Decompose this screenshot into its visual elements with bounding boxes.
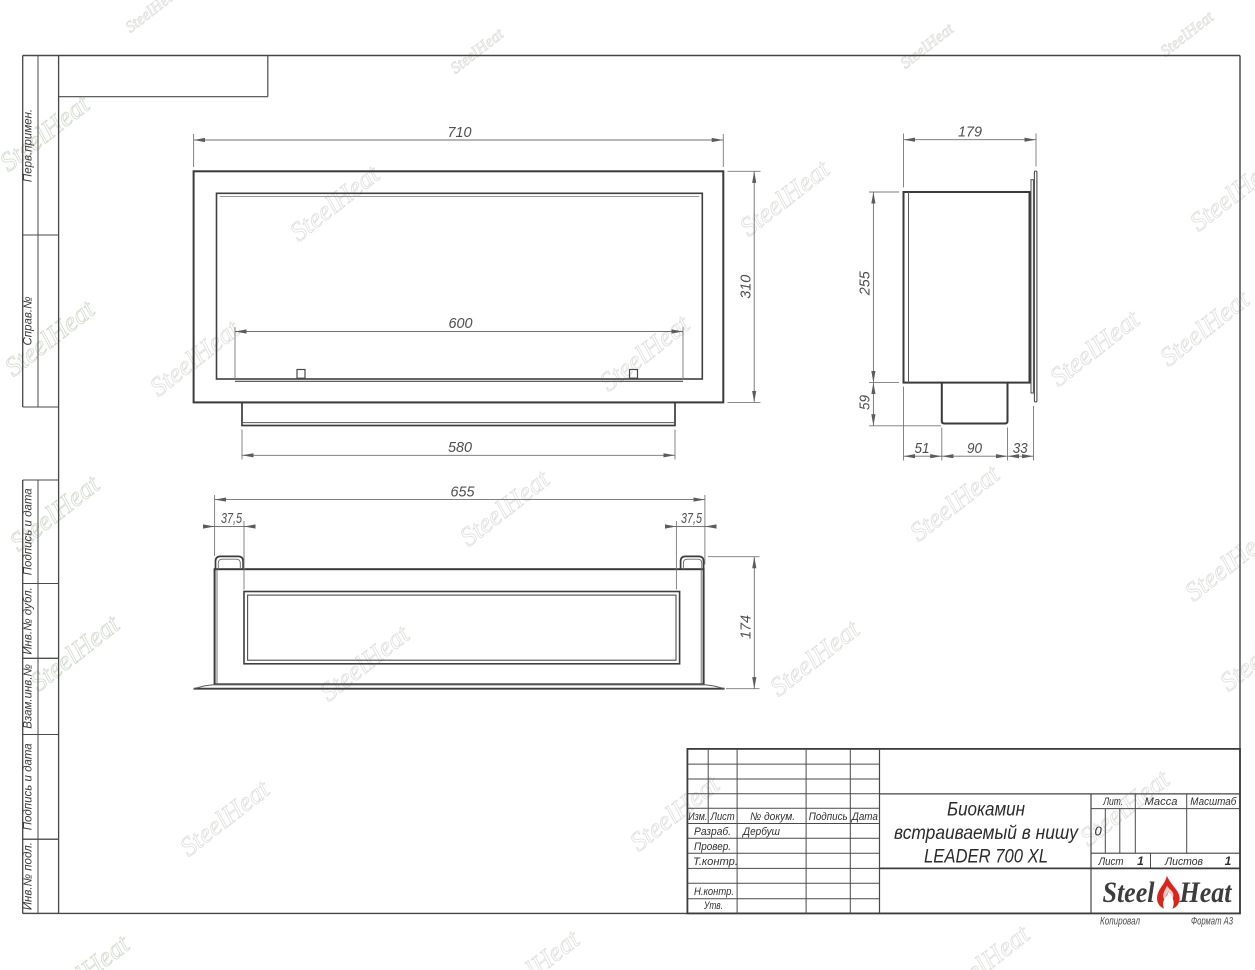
svg-text:встраиваемый в нишу: встраиваемый в нишу (894, 823, 1079, 844)
svg-text:655: 655 (451, 483, 476, 500)
svg-text:Лист: Лист (1098, 856, 1124, 868)
svg-text:90: 90 (967, 440, 983, 457)
svg-text:Лит.: Лит. (1102, 796, 1123, 808)
svg-text:710: 710 (448, 124, 473, 141)
svg-text:174: 174 (738, 615, 755, 639)
svg-text:Подпись и дата: Подпись и дата (23, 743, 35, 830)
svg-text:Подпись и дата: Подпись и дата (23, 488, 35, 575)
svg-text:Разраб.: Разраб. (694, 826, 731, 838)
svg-text:Утв.: Утв. (703, 900, 723, 912)
svg-text:59: 59 (857, 394, 874, 410)
svg-text:37,5: 37,5 (681, 510, 702, 527)
svg-text:Подпись: Подпись (809, 811, 848, 823)
svg-text:Справ.№: Справ.№ (23, 296, 35, 346)
svg-text:№ докум.: № докум. (750, 811, 795, 823)
svg-text:179: 179 (958, 123, 983, 140)
svg-text:Н.контр.: Н.контр. (694, 886, 734, 898)
svg-text:Инв.№ дубл.: Инв.№ дубл. (23, 587, 35, 655)
svg-text:Дербуш: Дербуш (741, 826, 780, 838)
svg-text:Изм.: Изм. (688, 811, 707, 823)
svg-text:580: 580 (448, 439, 473, 456)
svg-text:Масштаб: Масштаб (1190, 796, 1237, 808)
svg-text:600: 600 (449, 315, 474, 332)
svg-text:Листов: Листов (1164, 856, 1203, 868)
svg-text:1: 1 (1225, 854, 1232, 868)
svg-text:33: 33 (1013, 440, 1029, 457)
svg-text:Перв.примен.: Перв.примен. (23, 109, 35, 182)
svg-text:1: 1 (1137, 854, 1144, 868)
svg-text:Масса: Масса (1145, 796, 1178, 808)
svg-text:LEADER 700 XL: LEADER 700 XL (924, 846, 1048, 867)
svg-text:Дата: Дата (850, 811, 878, 823)
svg-text:Провер.: Провер. (694, 841, 731, 853)
svg-text:Steel: Steel (1103, 876, 1156, 909)
svg-text:Биокамин: Биокамин (947, 800, 1025, 821)
svg-text:310: 310 (738, 274, 755, 299)
svg-text:Лист: Лист (710, 811, 735, 823)
svg-text:Взам.инв.№: Взам.инв.№ (23, 663, 35, 728)
svg-text:Формат А3: Формат А3 (1191, 916, 1234, 928)
svg-text:51: 51 (915, 440, 930, 457)
svg-text:Инв.№ подл.: Инв.№ подл. (23, 842, 35, 910)
svg-text:Т.контр.: Т.контр. (693, 856, 738, 868)
svg-text:255: 255 (857, 271, 874, 297)
svg-text:0: 0 (1094, 824, 1102, 839)
svg-text:Heat: Heat (1179, 876, 1233, 909)
svg-text:Копировал: Копировал (1100, 916, 1140, 928)
svg-text:37,5: 37,5 (221, 510, 242, 527)
